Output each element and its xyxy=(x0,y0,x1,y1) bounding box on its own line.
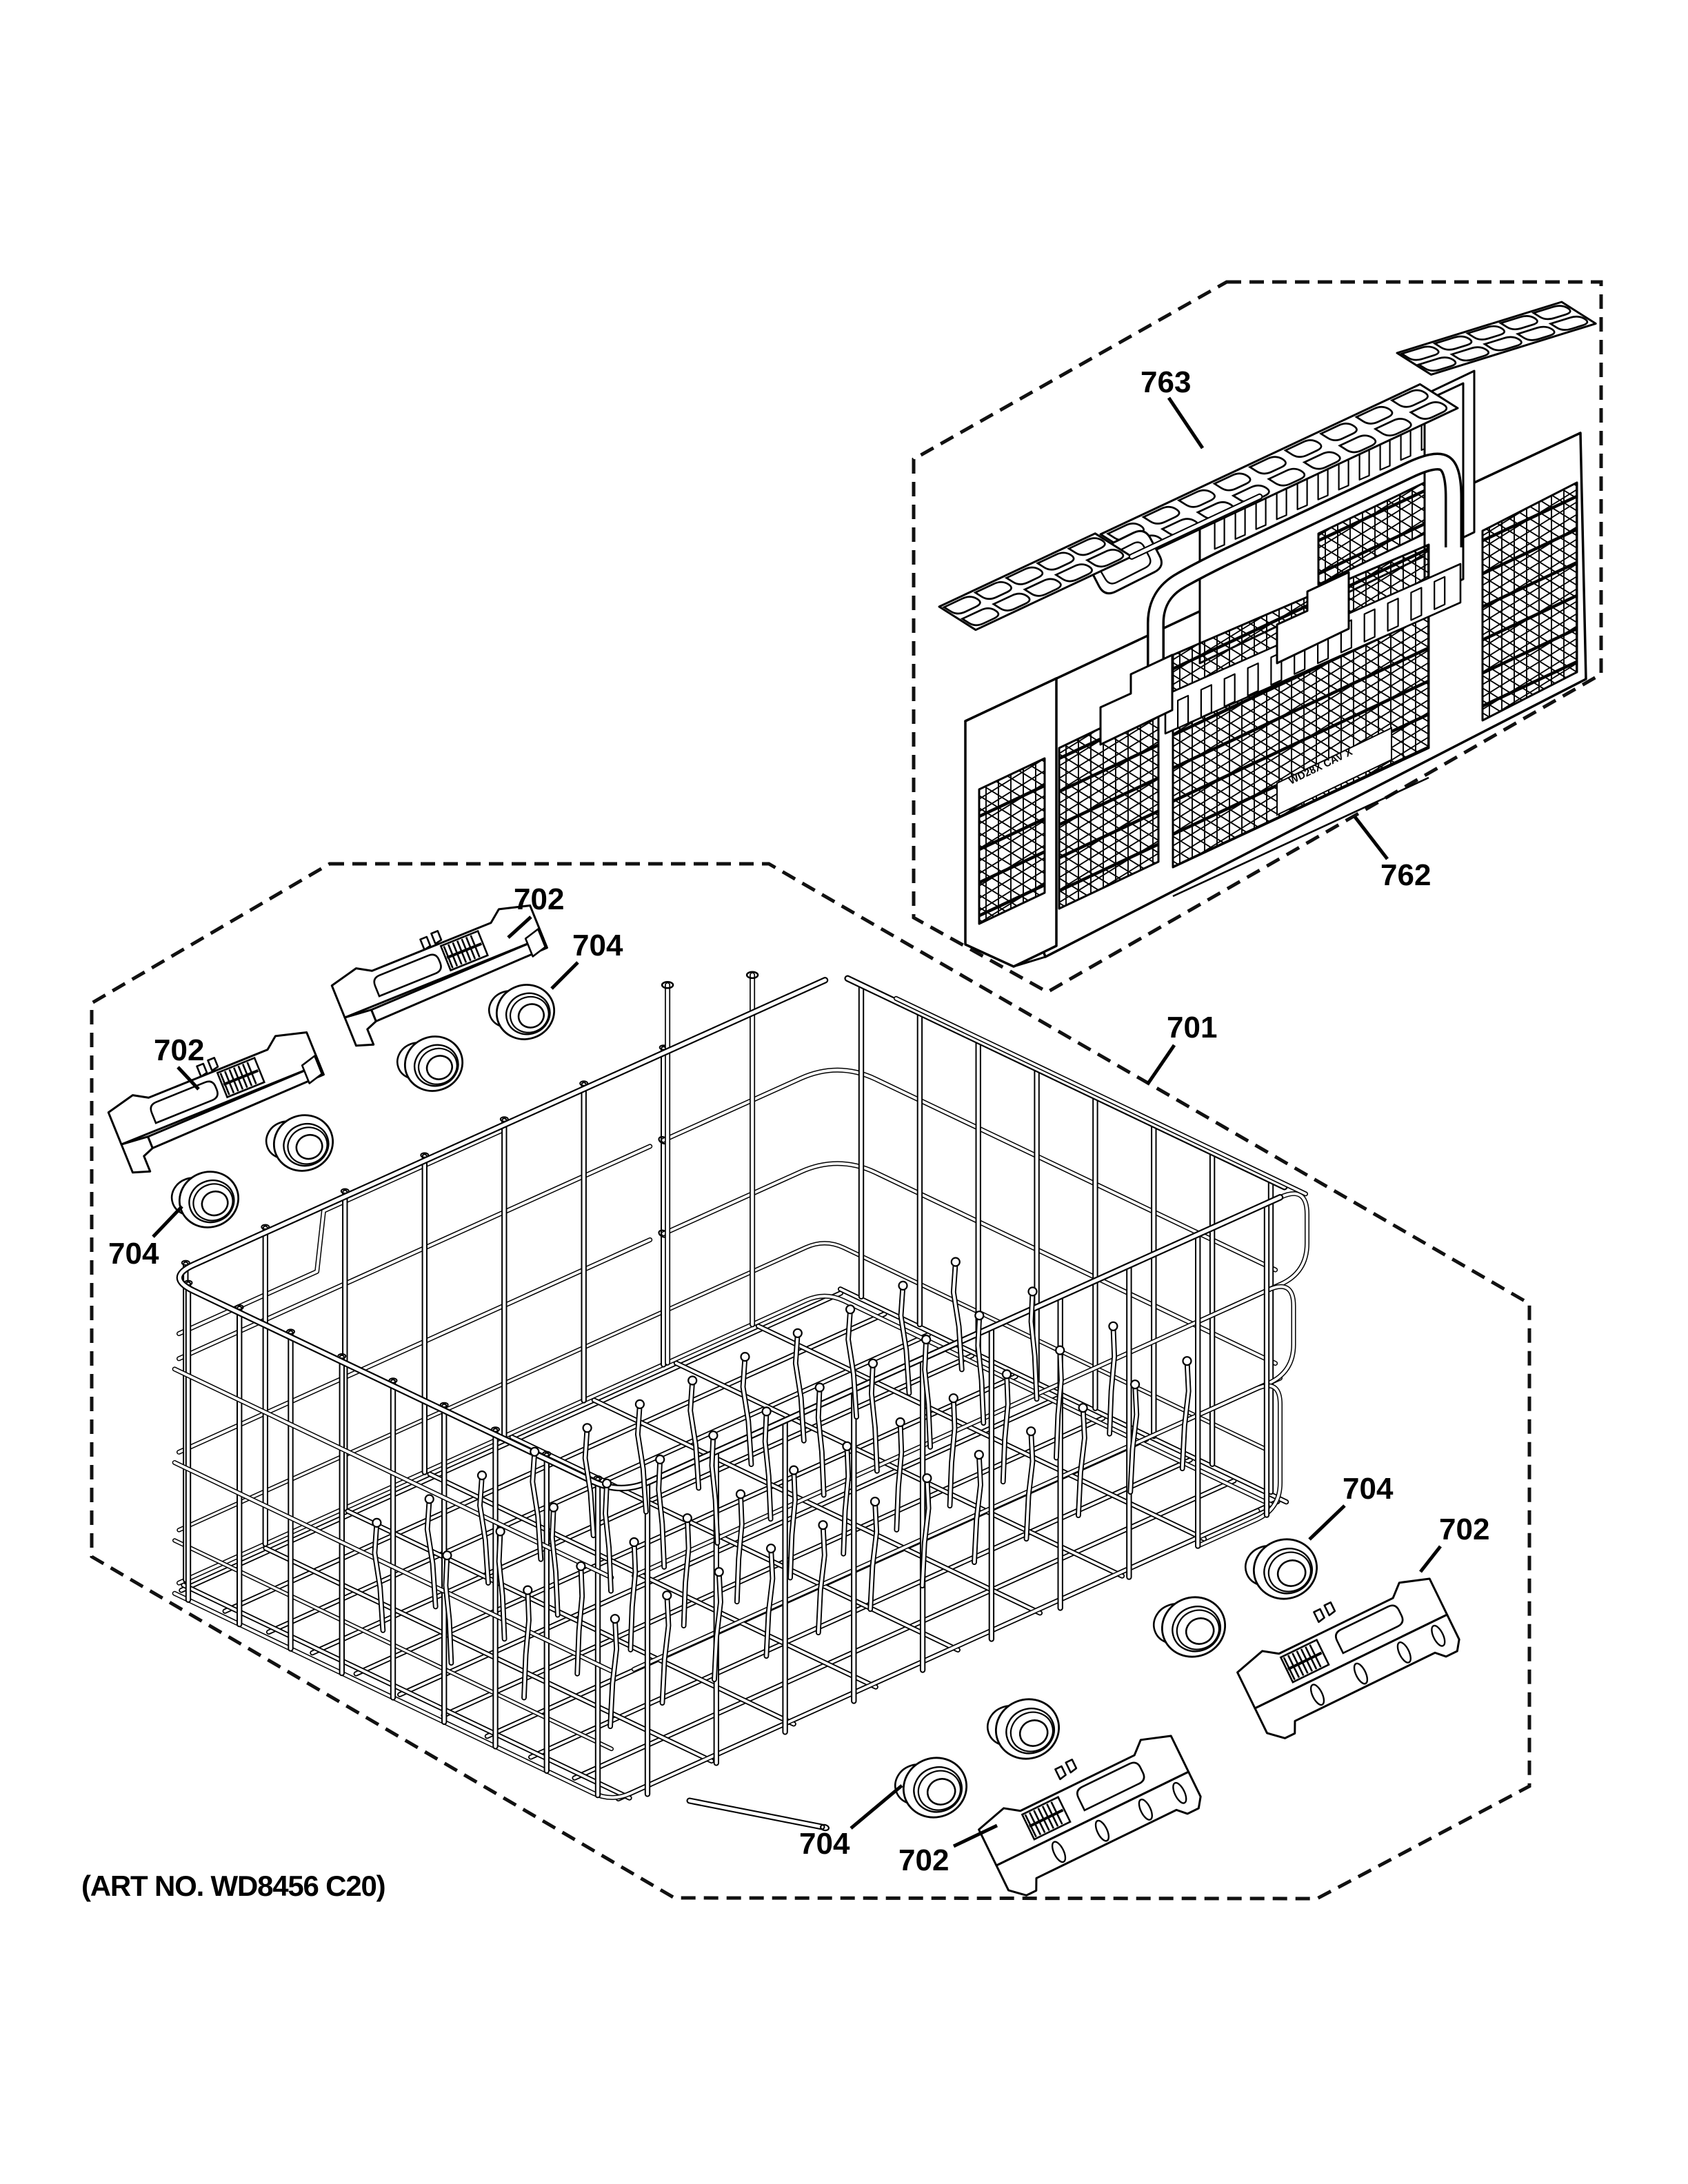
svg-text:704: 704 xyxy=(572,929,623,962)
svg-text:(ART NO. WD8456 C20): (ART NO. WD8456 C20) xyxy=(81,1870,385,1902)
svg-text:701: 701 xyxy=(1167,1011,1217,1044)
svg-text:702: 702 xyxy=(898,1843,949,1877)
svg-text:702: 702 xyxy=(1439,1513,1489,1546)
svg-text:702: 702 xyxy=(514,882,564,916)
svg-text:762: 762 xyxy=(1380,858,1431,892)
svg-text:704: 704 xyxy=(799,1827,850,1861)
svg-text:702: 702 xyxy=(154,1033,204,1067)
svg-text:763: 763 xyxy=(1141,365,1191,399)
svg-text:704: 704 xyxy=(108,1237,159,1271)
svg-text:704: 704 xyxy=(1343,1472,1394,1506)
